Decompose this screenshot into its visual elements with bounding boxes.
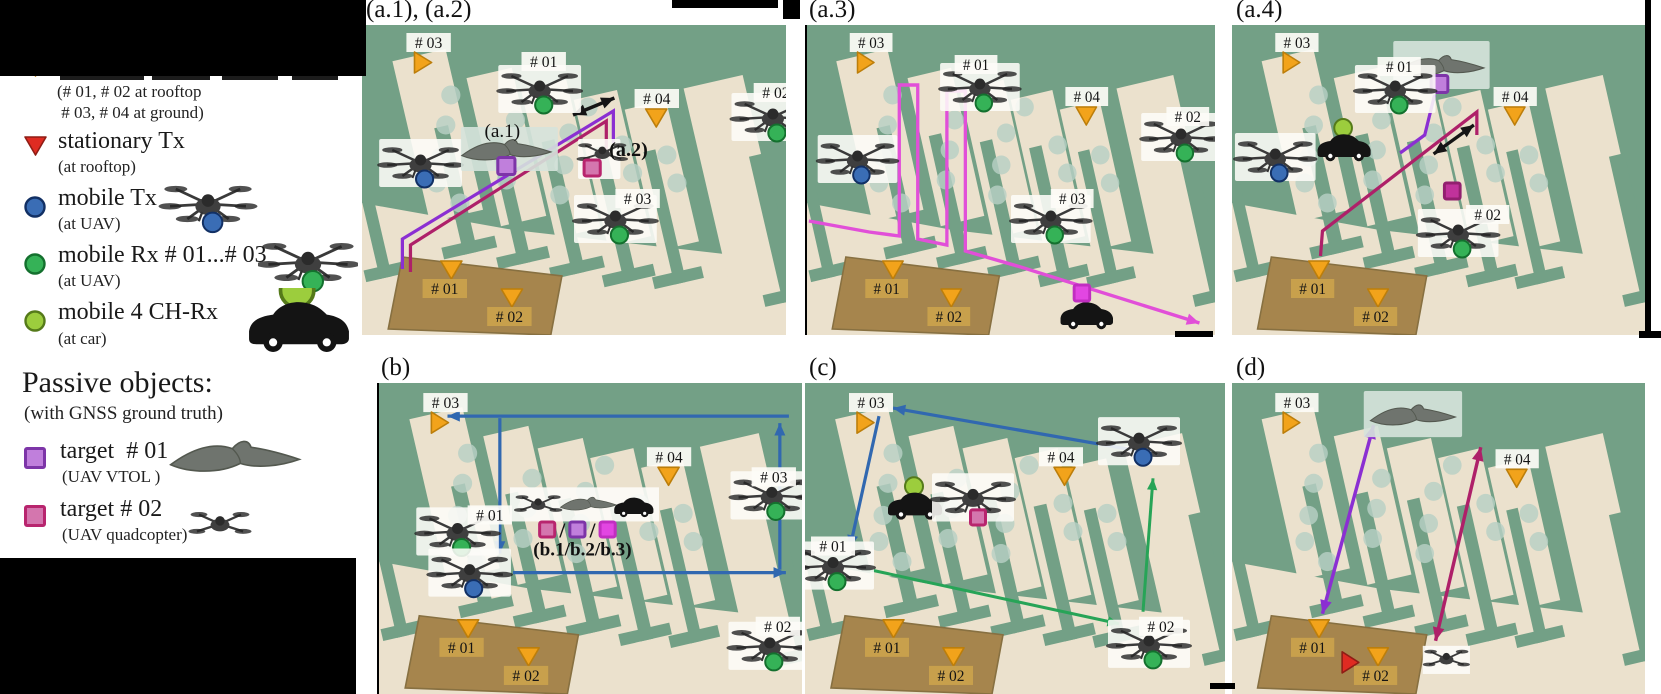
tree-marker	[1108, 532, 1127, 551]
tree-marker	[893, 552, 912, 571]
green-node-dot	[767, 503, 784, 520]
mobile-rx-label: mobile Rx # 01...# 03	[58, 242, 267, 268]
target-02-sub: (UAV quadcopter)	[62, 525, 187, 545]
svg-text:# 01: # 01	[1386, 59, 1413, 76]
marker-label-chip: # 01	[468, 505, 512, 524]
panel-label-a3: (a.3)	[809, 0, 856, 23]
passive-objects-title: Passive objects:	[22, 366, 213, 400]
marker-label-chip: # 01	[811, 536, 855, 555]
tree-marker	[1476, 136, 1495, 155]
tree-marker	[1486, 522, 1505, 541]
svg-text:# 02: # 02	[1362, 668, 1389, 685]
marker-label-chip: # 02	[756, 617, 800, 636]
marker-label-chip: # 02	[754, 83, 786, 102]
svg-text:# 03: # 03	[858, 35, 885, 52]
svg-text:# 03: # 03	[1284, 395, 1311, 412]
panel-a1-a2: (a.1), (a.2) # 01# 03# 04# 02(a.1)(a.2)#…	[362, 0, 786, 335]
marker-label-chip: # 01	[1291, 279, 1334, 298]
svg-text:# 04: # 04	[1074, 89, 1101, 106]
tree-marker	[513, 529, 532, 548]
svg-text:# 02: # 02	[1362, 309, 1389, 326]
marker-label-chip: # 01	[955, 55, 998, 74]
marker-label-chip: # 03	[850, 33, 893, 52]
tree-marker	[639, 522, 658, 541]
tree-marker	[1443, 98, 1462, 117]
marker-label-chip: # 03	[406, 33, 450, 52]
tree-marker	[623, 164, 642, 183]
tree-marker	[657, 146, 676, 165]
tree-marker	[1476, 494, 1495, 513]
tree-marker	[939, 529, 958, 548]
map-a3: # 01# 03# 04# 02# 03# 01# 02	[805, 25, 1215, 335]
tree-marker	[1529, 174, 1548, 193]
target-square-magenta	[600, 522, 615, 537]
panel-a4: (a.4) # 01# 03# 04# 02# 01# 02	[1232, 0, 1645, 335]
tree-marker	[1098, 504, 1117, 523]
svg-text:# 02: # 02	[512, 668, 539, 685]
car-icon	[249, 288, 349, 352]
tree-marker	[1309, 444, 1328, 463]
marker-label-chip: # 02	[1466, 205, 1509, 224]
marker-label-chip: # 03	[423, 393, 467, 412]
tree-marker	[674, 504, 693, 523]
target-square-pink	[971, 510, 986, 525]
panel-d: (d) # 03# 04# 01# 02	[1232, 355, 1645, 694]
mobile-tx-dot-icon	[22, 194, 48, 225]
car-icon	[243, 288, 355, 357]
mobile-rx-dot-icon	[22, 251, 48, 282]
tree-marker	[879, 474, 898, 493]
svg-text:# 03: # 03	[1059, 191, 1086, 208]
marker-label-chip: # 02	[1166, 107, 1209, 126]
green-node-dot	[1391, 97, 1408, 114]
tree-marker	[436, 116, 455, 135]
annotation-text: (a.2)	[609, 139, 648, 161]
blue-node-dot	[416, 171, 433, 188]
svg-text:# 03: # 03	[760, 469, 788, 486]
figure-root: { "legend": { "gnss_item": { "sub1": "(#…	[0, 0, 1661, 694]
tree-marker	[1054, 494, 1073, 513]
marker-label-chip: # 03	[615, 189, 659, 208]
tree-marker	[550, 186, 569, 205]
map-d: # 03# 04# 01# 02	[1232, 383, 1645, 694]
target-square-pink	[584, 160, 600, 176]
svg-text:# 03: # 03	[432, 395, 460, 412]
marker-label-chip: # 02	[487, 307, 531, 326]
tree-marker	[453, 474, 472, 493]
tree-marker	[1091, 146, 1109, 165]
marker-label-chip: # 02	[1354, 666, 1397, 685]
tree-marker	[1299, 506, 1318, 525]
black-redaction-box	[0, 0, 366, 76]
svg-text:# 04: # 04	[643, 91, 671, 108]
marker-label-chip: # 04	[1496, 449, 1539, 468]
tree-marker	[1020, 456, 1039, 475]
marker-label-chip: # 03	[1275, 393, 1318, 412]
mobile-4ch-rx-sub: (at car)	[58, 329, 107, 349]
tree-marker	[1372, 111, 1391, 130]
svg-text:# 01: # 01	[448, 640, 475, 657]
svg-text:# 02: # 02	[1474, 207, 1501, 224]
black-redaction-box	[1639, 331, 1661, 338]
tree-marker	[892, 194, 910, 213]
svg-text:# 01: # 01	[963, 57, 989, 74]
stationary-tx-triangle-icon	[23, 136, 49, 165]
green-node-dot	[976, 95, 993, 112]
tree-marker	[441, 86, 460, 105]
svg-text:# 03: # 03	[857, 395, 884, 412]
passive-objects-sub: (with GNSS ground truth)	[24, 404, 223, 424]
tree-marker	[1419, 514, 1438, 533]
tree-marker	[1415, 186, 1434, 205]
svg-text:# 04: # 04	[655, 449, 683, 466]
tree-marker	[1529, 532, 1548, 551]
blue-node-dot	[1135, 449, 1152, 466]
uav-hexacopter-blue-icon	[158, 178, 258, 243]
target-square-purple	[570, 522, 585, 537]
marker-label-chip: # 04	[635, 89, 679, 108]
uav-quadcopter-icon	[182, 500, 258, 553]
marker-label-chip: # 01	[865, 638, 909, 657]
black-redaction-box	[783, 0, 800, 19]
tree-marker	[1520, 146, 1539, 165]
svg-text:# 02: # 02	[936, 309, 962, 326]
tree-marker	[1058, 164, 1076, 183]
tree-marker	[1443, 456, 1462, 475]
target-01-square-icon	[24, 447, 46, 469]
marker-label-chip: # 02	[927, 307, 970, 326]
svg-text:# 02: # 02	[937, 668, 964, 685]
tree-marker	[1367, 499, 1386, 518]
tree-marker	[1048, 136, 1066, 155]
panel-label-d: (d)	[1236, 355, 1265, 381]
tree-marker	[1419, 156, 1438, 175]
marker-label-chip: # 02	[504, 666, 548, 685]
annotation-text: (b.1/b.2/b.3)	[533, 540, 631, 561]
tree-marker	[1064, 522, 1083, 541]
marker-label-chip: # 03	[849, 393, 893, 412]
gnss-sub2: # 03, # 04 at ground)	[57, 103, 204, 123]
panel-c: (c) # 03# 04# 01# 02# 01# 02	[805, 355, 1225, 694]
marker-label-chip: # 01	[439, 638, 483, 657]
red-down-triangle-icon	[25, 137, 46, 155]
svg-text:# 01: # 01	[873, 281, 899, 298]
target-01-label: target # 01	[60, 438, 168, 464]
green-node-dot	[1046, 227, 1063, 244]
annotation-text: (a.1)	[484, 121, 520, 142]
marker-label-chip: # 03	[1051, 189, 1094, 208]
blue-node-dot	[203, 213, 223, 233]
green-node-dot	[829, 573, 846, 590]
map-c: # 03# 04# 01# 02# 01# 02	[805, 383, 1225, 694]
green-node-dot	[1145, 651, 1162, 668]
mobile-tx-label: mobile Tx	[58, 185, 157, 211]
green-node-dot	[768, 125, 785, 142]
blue-node-dot	[853, 167, 870, 184]
svg-text:# 04: # 04	[1502, 89, 1529, 106]
svg-text:# 01: # 01	[1299, 281, 1326, 298]
tree-marker	[992, 544, 1011, 563]
mobile-4ch-rx-dot-icon	[22, 308, 48, 339]
vtol-icon	[171, 441, 300, 471]
tree-marker	[997, 124, 1015, 143]
green-node-dot	[765, 653, 782, 670]
tree-marker	[667, 174, 686, 193]
svg-text:# 04: # 04	[1504, 451, 1531, 468]
blue-node-dot	[465, 580, 482, 597]
tree-marker	[1304, 116, 1323, 135]
target-square-pink	[540, 522, 555, 537]
tree-marker	[1486, 164, 1505, 183]
tree-marker	[1520, 504, 1539, 523]
stationary-tx-sub: (at rooftop)	[58, 157, 136, 177]
target-02-square-icon	[24, 505, 46, 527]
svg-text:# 02: # 02	[1175, 109, 1201, 126]
green-node-dot	[1454, 241, 1471, 258]
stationary-tx-label: stationary Tx	[58, 128, 185, 154]
tree-marker	[941, 141, 959, 160]
tree-marker	[458, 444, 477, 463]
panel-label-b: (b)	[381, 355, 410, 381]
marker-label-chip: # 02	[1139, 617, 1183, 636]
black-redaction-box	[1175, 331, 1213, 337]
tree-marker	[992, 156, 1010, 175]
tree-marker	[1295, 532, 1314, 551]
tree-marker	[878, 116, 896, 135]
tree-marker	[988, 186, 1006, 205]
tree-marker	[1304, 474, 1323, 493]
target-02-label: target # 02	[60, 496, 162, 522]
tree-marker	[1309, 86, 1328, 105]
marker-label-chip: # 02	[929, 666, 973, 685]
marker-label-chip: # 02	[1354, 307, 1397, 326]
uav-vtol-icon	[165, 432, 305, 491]
svg-text:# 03: # 03	[415, 35, 443, 52]
green-node-dot	[1177, 145, 1194, 162]
gnss-sub1: (# 01, # 02 at rooftop	[57, 82, 201, 102]
map-b: # 03# 04# 03//(b.1/b.2/b.3)# 01# 02# 01#…	[377, 383, 802, 694]
mobile-tx-sub: (at UAV)	[58, 214, 120, 234]
svg-text:# 03: # 03	[1284, 35, 1311, 52]
tree-marker	[595, 456, 614, 475]
target-square-purple	[498, 158, 515, 175]
target-square-deepmagenta	[1444, 183, 1460, 199]
marker-label-chip: # 03	[752, 467, 796, 486]
marker-label-chip: # 04	[1039, 447, 1083, 466]
svg-text:# 02: # 02	[1147, 619, 1174, 636]
svg-text:# 01: # 01	[873, 640, 900, 657]
tree-marker	[1318, 194, 1337, 213]
tree-marker	[1415, 544, 1434, 563]
blue-node-dot	[1271, 165, 1288, 182]
marker-label-chip: # 01	[522, 52, 566, 71]
marker-label-chip: # 04	[1494, 87, 1537, 106]
svg-text:# 01: # 01	[476, 507, 503, 524]
marker-label-chip: # 01	[423, 279, 467, 298]
tree-marker	[1363, 529, 1382, 548]
mobile-rx-sub: (at UAV)	[58, 271, 120, 291]
tree-marker	[1372, 469, 1391, 488]
black-redaction-box	[1210, 683, 1235, 689]
marker-label-chip: # 01	[1378, 57, 1421, 76]
black-redaction-box	[1645, 0, 1651, 337]
panel-b: (b) # 03# 04# 03//(b.1/b.2/b.3)# 01# 02#…	[377, 355, 800, 694]
panel-a3: (a.3) # 01# 03# 04# 02# 03# 01# 02	[805, 0, 1213, 335]
black-redaction-box	[0, 558, 356, 694]
black-redaction-box	[672, 0, 778, 8]
marker-label-chip: # 01	[1291, 638, 1334, 657]
target-square-magenta	[1074, 285, 1090, 301]
tree-marker	[523, 469, 542, 488]
svg-text:# 01: # 01	[819, 539, 846, 556]
tree-marker	[884, 444, 903, 463]
marker-label-chip: # 01	[865, 279, 908, 298]
marker-label-chip: # 04	[647, 447, 691, 466]
svg-text:# 02: # 02	[764, 619, 791, 636]
mobile-4ch-rx-label: mobile 4 CH-Rx	[58, 299, 218, 325]
map-a1-a2: # 01# 03# 04# 02(a.1)(a.2)# 03# 01# 02	[362, 25, 786, 335]
svg-text:# 01: # 01	[530, 54, 557, 71]
map-a4: # 01# 03# 04# 02# 01# 02	[1232, 25, 1645, 335]
tree-marker	[1424, 482, 1443, 501]
svg-text:# 01: # 01	[1299, 640, 1326, 657]
green-node-dot	[611, 227, 628, 244]
svg-text:# 03: # 03	[624, 191, 652, 208]
svg-text:# 02: # 02	[496, 309, 523, 326]
target-01-sub: (UAV VTOL )	[62, 467, 160, 487]
panel-label-a4: (a.4)	[1236, 0, 1283, 23]
marker-label-chip: # 03	[1275, 33, 1318, 52]
svg-text:# 04: # 04	[1047, 449, 1074, 466]
green-node-dot	[535, 97, 552, 114]
svg-text:# 02: # 02	[762, 85, 786, 102]
panel-label-a1-a2: (a.1), (a.2)	[366, 0, 472, 23]
marker-label-chip: # 04	[1065, 87, 1108, 106]
tree-marker	[684, 532, 703, 551]
quadcopter-icon	[189, 512, 252, 534]
panel-label-c: (c)	[809, 355, 837, 381]
svg-text:# 01: # 01	[431, 281, 458, 298]
tree-marker	[1101, 174, 1119, 193]
